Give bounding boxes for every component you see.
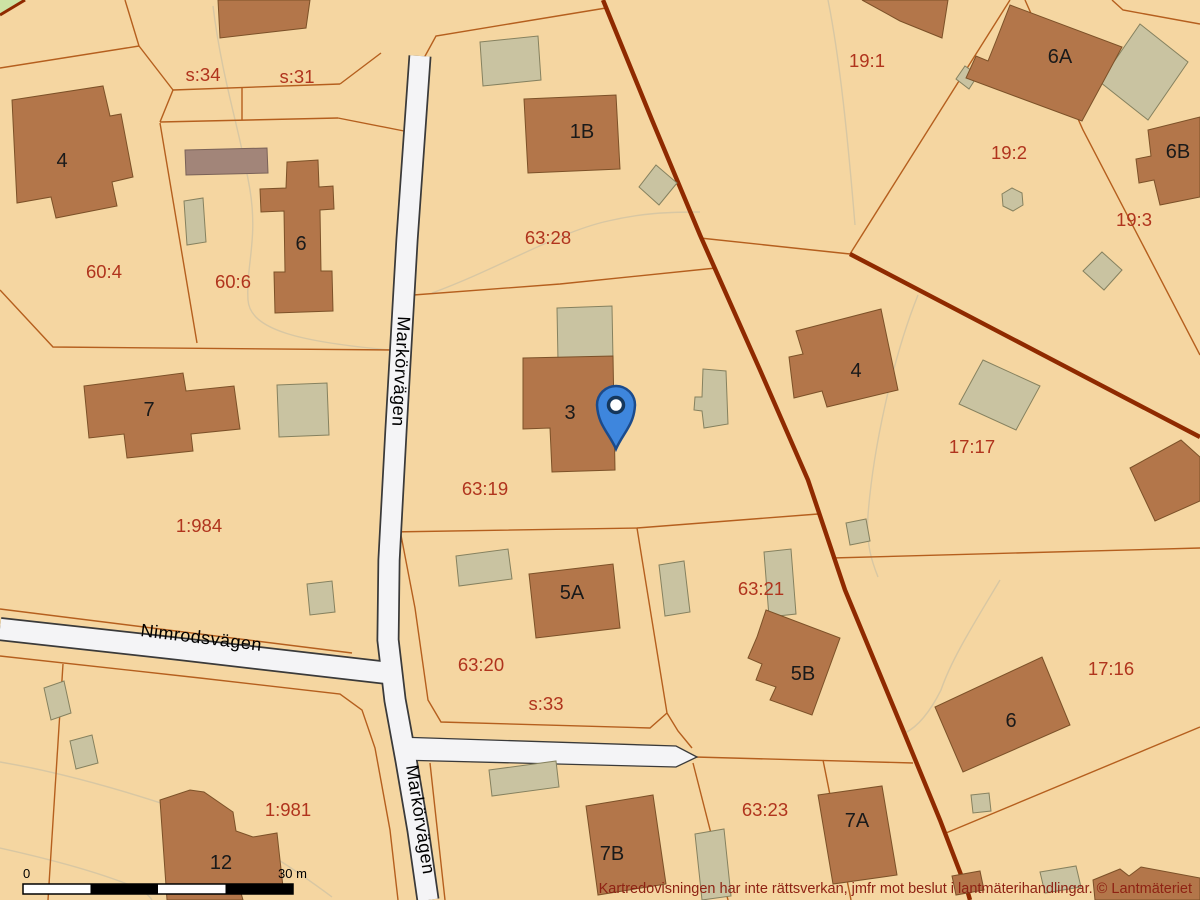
parcel-label-19-1: 19:1 [849, 50, 885, 71]
map-viewport[interactable]: s:34 s:31 60:4 60:6 63:28 1:984 63:19 63… [0, 0, 1200, 900]
building-label-5a: 5A [560, 582, 585, 604]
scale-bar-segment [226, 884, 294, 894]
outbuilding [971, 793, 991, 813]
building-label-12: 12 [210, 852, 232, 874]
outbuilding [307, 581, 335, 615]
parcel-label-s34: s:34 [186, 64, 221, 85]
building-special [185, 148, 268, 175]
outbuilding [846, 519, 870, 545]
parcel-label-63-21: 63:21 [738, 578, 784, 599]
building-label-5b: 5B [791, 663, 815, 685]
outbuilding [456, 549, 512, 586]
scale-end-label: 30 m [278, 866, 307, 881]
building-label-4w: 4 [56, 150, 67, 172]
parcel-label-63-19: 63:19 [462, 478, 508, 499]
building-7b [586, 795, 666, 895]
scale-bar-segment [91, 884, 159, 894]
outbuilding [480, 36, 541, 86]
parcel-label-60-6: 60:6 [215, 271, 251, 292]
parcel-label-17-16: 17:16 [1088, 658, 1134, 679]
scale-start-label: 0 [23, 866, 30, 881]
building-label-6w: 6 [295, 233, 306, 255]
outbuilding [659, 561, 690, 616]
parcel-label-63-20: 63:20 [458, 654, 504, 675]
parcel-label-19-2: 19:2 [991, 142, 1027, 163]
building-label-7b: 7B [600, 843, 624, 865]
building-label-3: 3 [564, 402, 575, 424]
parcel-label-s31: s:31 [280, 66, 315, 87]
building-label-7a: 7A [845, 810, 870, 832]
parcel-label-63-28: 63:28 [525, 227, 571, 248]
building-label-6a: 6A [1048, 46, 1073, 68]
parcel-label-17-17: 17:17 [949, 436, 995, 457]
parcel-label-63-23: 63:23 [742, 799, 788, 820]
building-label-1b: 1B [570, 121, 594, 143]
parcel-label-1-981: 1:981 [265, 799, 311, 820]
pin-center-dot [609, 398, 624, 413]
attribution-text: Kartredovisningen har inte rättsverkan, … [599, 881, 1192, 897]
parcel-label-1-984: 1:984 [176, 515, 222, 536]
outbuilding [557, 306, 613, 361]
parcel-label-19-3: 19:3 [1116, 209, 1152, 230]
building-label-6se: 6 [1005, 710, 1016, 732]
parcel-label-60-4: 60:4 [86, 261, 122, 282]
cadastral-map-canvas[interactable]: s:34 s:31 60:4 60:6 63:28 1:984 63:19 63… [0, 0, 1200, 900]
building-label-6b: 6B [1166, 141, 1190, 163]
parcel-label-s33: s:33 [529, 693, 564, 714]
building-label-7: 7 [143, 399, 154, 421]
outbuilding [277, 383, 329, 437]
building-label-4e: 4 [850, 360, 861, 382]
outbuilding [184, 198, 206, 245]
